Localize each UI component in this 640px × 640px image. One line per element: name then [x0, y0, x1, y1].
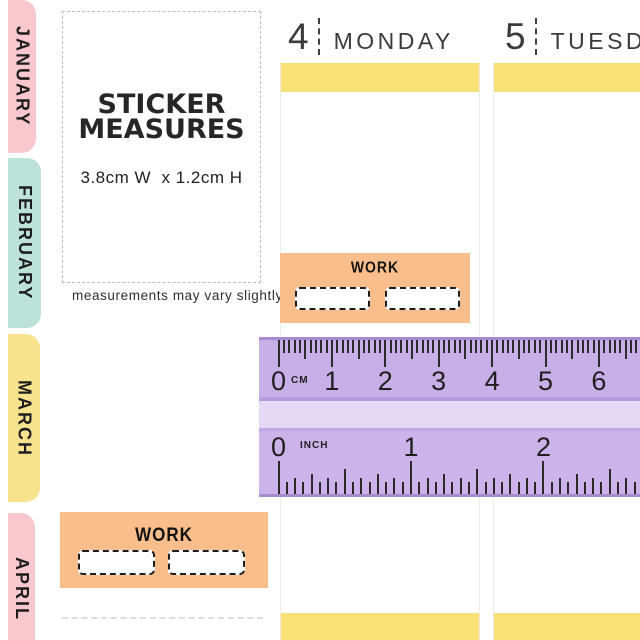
ruler-inch-tick [385, 482, 387, 494]
ruler-inch-tick [427, 478, 429, 494]
ruler-cm-tick [630, 340, 632, 353]
ruler-inch-tick [402, 482, 404, 494]
ruler-inch-number: 1 [389, 434, 433, 461]
sticker-blank-box [168, 550, 245, 575]
ruler-cm-tick [395, 340, 397, 353]
ruler-cm-tick [523, 340, 525, 353]
ruler-cm-tick [561, 340, 563, 353]
ruler-cm-tick [320, 340, 322, 353]
month-tab-february: FEBRUARY [8, 158, 41, 328]
ruler-inch-number: 2 [521, 434, 565, 461]
month-tab-label: MARCH [14, 380, 35, 457]
ruler-cm-tick [416, 340, 418, 353]
ruler-inch-tick [609, 469, 611, 494]
ruler-inch-tick [393, 478, 395, 494]
work-sticker-enlarged: WORK [60, 512, 268, 588]
ruler-cm-tick [422, 340, 424, 353]
ruler-cm-tick [475, 340, 477, 353]
ruler-inch-tick [410, 461, 412, 494]
ruler-inch-tick [485, 482, 487, 494]
ruler-cm-tick [539, 340, 541, 353]
ruler-inch-tick [451, 482, 453, 494]
ruler-inch-tick [592, 478, 594, 494]
ruler-inch-tick [335, 482, 337, 494]
ruler-cm-tick [512, 340, 514, 353]
faded-dashed-line [62, 617, 263, 619]
ruler-cm-tick [368, 340, 370, 353]
header-highlight-bar [281, 63, 479, 92]
ruler-cm-tick [486, 340, 488, 353]
ruler-cm-tick [379, 340, 381, 353]
ruler-cm-tick [310, 340, 312, 353]
ruler-cm-tick [299, 340, 301, 353]
ruler-inch-tick [327, 478, 329, 494]
ruler-cm-tick [352, 340, 354, 353]
ruler-inch-tick [559, 478, 561, 494]
ruler-cm-tick [528, 340, 530, 353]
work-sticker-in-column: WORK [280, 253, 470, 323]
ruler-cm-tick [480, 340, 482, 353]
sticker-blank-box [295, 287, 370, 310]
ruler-inch-tick [360, 478, 362, 494]
sticker-dimensions: 3.8cm W x 1.2cm H [63, 168, 260, 188]
ruler-cm-tick [406, 340, 408, 353]
ruler-cm-number: 5 [524, 368, 568, 395]
ruler-cm-number: 3 [417, 368, 461, 395]
ruler-inch-tick [625, 478, 627, 494]
ruler-cm-tick [390, 340, 392, 353]
day-name: MONDAY [334, 28, 454, 55]
sticker-blank-box [78, 550, 155, 575]
ruler-inch-tick [344, 469, 346, 494]
date-number: 4 [288, 17, 309, 56]
measures-title-line2: MEASURES [63, 117, 260, 142]
ruler-inch-tick [567, 482, 569, 494]
ruler-cm-tick [278, 340, 280, 367]
ruler-cm-tick [491, 340, 493, 367]
ruler-cm-tick [582, 340, 584, 353]
product-mockup-page: JANUARY FEBRUARY MARCH APRIL 4 MONDAY 5 … [0, 0, 640, 640]
ruler-inch-tick [634, 482, 636, 494]
ruler-cm-tick [502, 340, 504, 353]
header-highlight-bar [494, 63, 640, 92]
ruler-cm-number: 4 [470, 368, 514, 395]
ruler-cm-tick [555, 340, 557, 353]
ruler-cm-tick [283, 340, 285, 353]
ruler-cm-tick [363, 340, 365, 353]
ruler-cm-number: 6 [577, 368, 621, 395]
footer-highlight-bar [494, 613, 640, 640]
ruler-cm-tick [571, 340, 573, 359]
ruler-cm-tick [619, 340, 621, 353]
ruler-cm-tick [347, 340, 349, 353]
ruler-inch-tick [311, 474, 313, 494]
work-sticker-label: WORK [60, 524, 268, 547]
ruler-cm-tick [374, 340, 376, 353]
ruler-cm-tick [443, 340, 445, 353]
ruler-inch-tick [377, 474, 379, 494]
ruler-cm-tick [411, 340, 413, 359]
ruler-inch-tick [476, 469, 478, 494]
ruler-cm-tick [438, 340, 440, 367]
ruler-inch-tick [576, 474, 578, 494]
ruler-inch-tick [617, 482, 619, 494]
dashed-divider [318, 18, 320, 55]
ruler-inch-tick [369, 482, 371, 494]
ruler-inch-tick [518, 482, 520, 494]
ruler-cm-tick [454, 340, 456, 353]
ruler-inch-tick [600, 482, 602, 494]
ruler-inch-unit-label: INCH [300, 440, 328, 451]
ruler-inch-tick [584, 482, 586, 494]
ruler-inch-tick [468, 482, 470, 494]
ruler-cm-tick [550, 340, 552, 353]
ruler-cm-tick [448, 340, 450, 353]
day-header-tuesday: 5 TUESDAY [505, 17, 640, 56]
ruler-cm-tick [614, 340, 616, 353]
ruler-cm-number: 0 [257, 368, 301, 395]
ruler-cm-tick [294, 340, 296, 353]
ruler-cm-tick [598, 340, 600, 367]
ruler-inch-tick [352, 482, 354, 494]
sticker-blank-box [385, 287, 460, 310]
work-sticker-label: WORK [280, 258, 470, 276]
ruler-cm-tick [400, 340, 402, 353]
ruler-cm-tick [587, 340, 589, 353]
ruler-inch-tick [278, 461, 280, 494]
ruler-inch-tick [493, 478, 495, 494]
ruler-cm-tick [315, 340, 317, 353]
ruler-cm-tick [459, 340, 461, 353]
month-tab-april: APRIL [8, 513, 35, 640]
dashed-divider [535, 18, 537, 55]
ruler-cm-number: 1 [310, 368, 354, 395]
ruler-inch-tick [509, 474, 511, 494]
ruler-inch-tick [501, 482, 503, 494]
ruler-inch-tick [443, 474, 445, 494]
ruler-cm-tick [342, 340, 344, 353]
day-name: TUESDAY [551, 28, 640, 55]
ruler-cm-tick [593, 340, 595, 353]
ruler-cm-tick [358, 340, 360, 359]
ruler-cm-tick [304, 340, 306, 359]
ruler-cm-tick [496, 340, 498, 353]
ruler-cm-tick [507, 340, 509, 353]
ruler-cm-tick [625, 340, 627, 359]
ruler-inch-tick [542, 461, 544, 494]
ruler-cm-tick [534, 340, 536, 353]
ruler-cm-tick [432, 340, 434, 353]
ruler-inch-tick [302, 482, 304, 494]
ruler-cm-tick [331, 340, 333, 367]
ruler-inch-tick [460, 478, 462, 494]
ruler-inch-tick [435, 482, 437, 494]
ruler-cm-tick [336, 340, 338, 353]
date-number: 5 [505, 17, 526, 56]
ruler-inch-tick [286, 482, 288, 494]
ruler-inch-tick [526, 478, 528, 494]
measures-title: STICKER MEASURES [63, 92, 260, 142]
month-tab-march: MARCH [8, 334, 40, 502]
measures-caption: measurements may vary slightly [72, 288, 283, 303]
ruler-inch-tick [534, 482, 536, 494]
ruler-cm-tick [288, 340, 290, 353]
ruler-inch-number: 0 [257, 434, 301, 461]
month-tab-label: APRIL [11, 557, 32, 621]
ruler-cm-tick [464, 340, 466, 359]
ruler-cm-tick [603, 340, 605, 353]
day-header-monday: 4 MONDAY [288, 17, 454, 56]
ruler-cm-tick [635, 340, 637, 353]
ruler-inch-tick [551, 482, 553, 494]
ruler: CM 0123456 INCH 012 [259, 337, 640, 497]
ruler-cm-tick [545, 340, 547, 367]
month-tab-label: FEBRUARY [14, 185, 35, 300]
footer-highlight-bar [281, 613, 479, 640]
month-tab-label: JANUARY [12, 26, 33, 126]
month-tab-january: JANUARY [8, 0, 36, 153]
ruler-cm-tick [566, 340, 568, 353]
ruler-inch-tick [418, 482, 420, 494]
ruler-cm-tick [427, 340, 429, 353]
ruler-inch-tick [319, 482, 321, 494]
ruler-inch-tick [294, 478, 296, 494]
ruler-cm-number: 2 [363, 368, 407, 395]
ruler-cm-tick [384, 340, 386, 367]
ruler-cm-tick [326, 340, 328, 353]
sticker-measures-box: STICKER MEASURES 3.8cm W x 1.2cm H [62, 11, 261, 283]
ruler-cm-tick [609, 340, 611, 353]
ruler-cm-tick [518, 340, 520, 359]
ruler-cm-tick [577, 340, 579, 353]
ruler-cm-tick [470, 340, 472, 353]
